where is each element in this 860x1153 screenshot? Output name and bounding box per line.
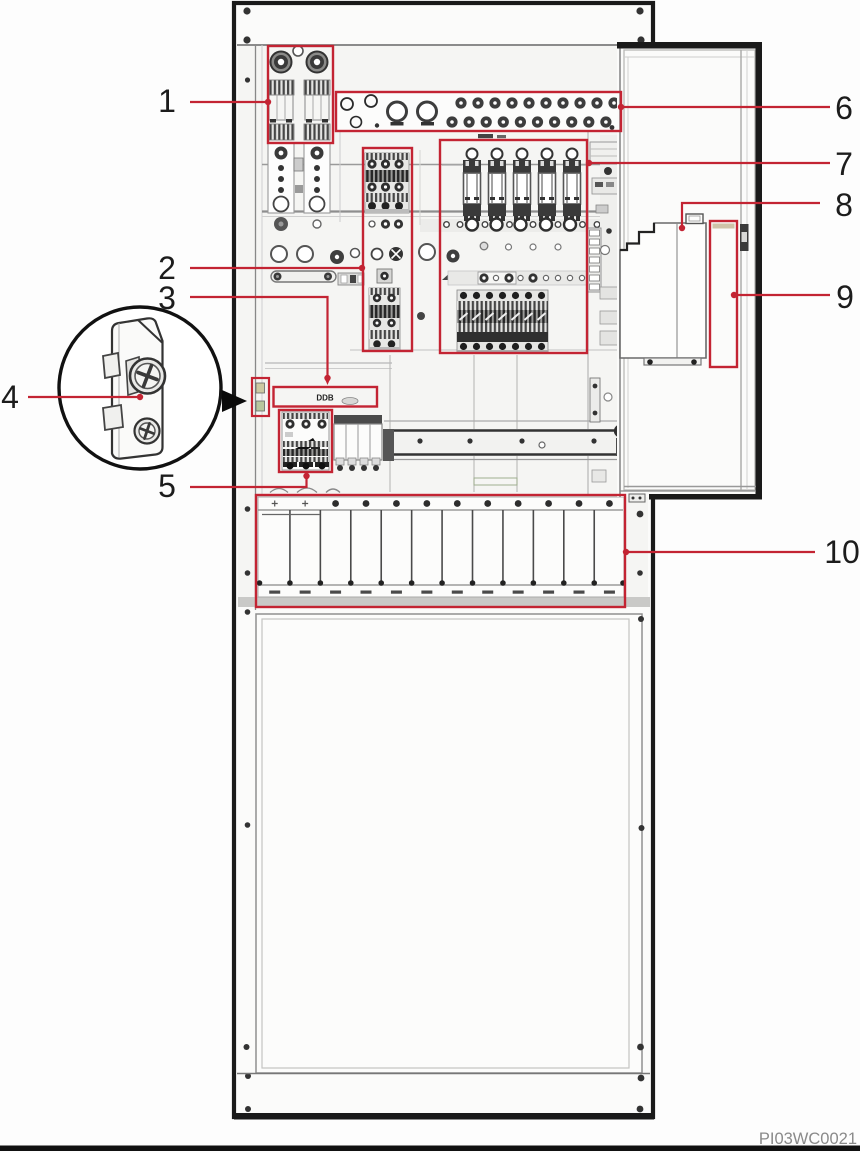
svg-text:10: 10 [824,534,860,570]
svg-text:3: 3 [158,280,176,316]
svg-text:9: 9 [836,279,854,315]
svg-text:5: 5 [158,468,176,504]
svg-text:DDB: DDB [316,394,334,403]
svg-text:6: 6 [835,90,853,126]
svg-text:1: 1 [158,83,176,119]
svg-text:7: 7 [835,146,853,182]
svg-text:PI03WC0021: PI03WC0021 [759,1130,857,1148]
svg-text:4: 4 [1,379,19,415]
svg-text:8: 8 [835,187,853,223]
